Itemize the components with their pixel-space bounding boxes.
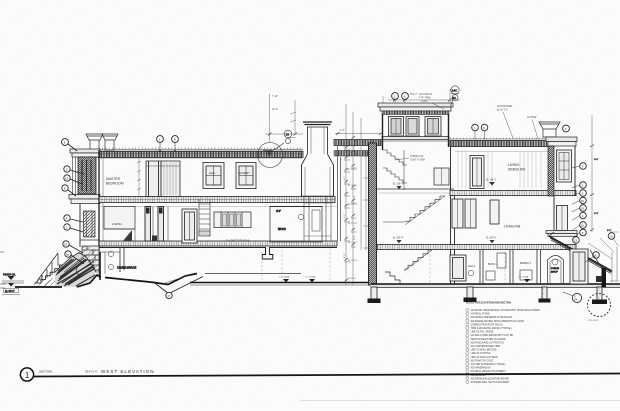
svg-text:14C: 14C [452, 89, 457, 93]
svg-text:15: 15 [64, 242, 68, 246]
svg-text:TRIM & MOULDING DETAIL (TYPICA: TRIM & MOULDING DETAIL (TYPICAL) [471, 327, 512, 330]
svg-text:10: 10 [65, 176, 69, 180]
svg-text:BDRM 1: BDRM 1 [520, 261, 531, 265]
svg-text:EL 98'-6": EL 98'-6" [348, 278, 357, 280]
svg-text:5A: 5A [453, 96, 456, 100]
svg-text:3/16"=1'-0": 3/16"=1'-0" [85, 370, 98, 374]
svg-text:1: 1 [25, 370, 30, 380]
svg-text:SECTION: SECTION [39, 370, 52, 374]
svg-text:LIVING/: LIVING/ [508, 163, 519, 167]
svg-text:8'-2": 8'-2" [607, 230, 612, 232]
svg-text:WD HANDRAILING: WD HANDRAILING [471, 367, 491, 370]
svg-text:WD CORNER BOARD TRIM: WD CORNER BOARD TRIM [471, 345, 501, 348]
svg-text:HEATING REGISTER TO GRADE: HEATING REGISTER TO GRADE [471, 338, 506, 341]
svg-text:GUTTER SLAB EDGE (TYPICAL): GUTTER SLAB EDGE (TYPICAL) [471, 363, 506, 366]
svg-text:EL 100'-4": EL 100'-4" [393, 238, 404, 240]
svg-text:8'-6": 8'-6" [344, 253, 346, 258]
svg-text:LIVING RM: LIVING RM [504, 225, 521, 229]
svg-text:MASTER: MASTER [106, 177, 121, 181]
svg-text:PORCH: PORCH [551, 268, 559, 270]
svg-text:WD TRIM TYP. CONT.: WD TRIM TYP. CONT. [471, 360, 494, 362]
svg-text:WD FRAME DOUBLE HUNG WINDOWS I: WD FRAME DOUBLE HUNG WINDOWS IN A ROW [471, 320, 525, 323]
svg-text:HALL: HALL [209, 171, 216, 175]
svg-text:16: 16 [581, 206, 585, 210]
svg-text:STONE CAP: STONE CAP [410, 155, 424, 158]
svg-text:9'-2": 9'-2" [594, 213, 599, 215]
svg-text:NOTES FOR ELEVATION AND: NOTES FOR ELEVATION AND SECTION [466, 302, 511, 305]
svg-text:HALL: HALL [468, 264, 476, 268]
svg-text:FTG. DET.: FTG. DET. [588, 320, 599, 322]
svg-text:EL 96'-0": EL 96'-0" [5, 290, 15, 293]
svg-text:EL 100'-0": EL 100'-0" [486, 238, 497, 240]
svg-text:LINE OF FIN. GRADE: LINE OF FIN. GRADE [471, 331, 494, 334]
svg-text:8'-1": 8'-1" [344, 175, 346, 180]
svg-text:GUTTER: GUTTER [527, 117, 537, 119]
svg-text:5a: 5a [66, 252, 70, 256]
svg-text:±2'-6": ±2'-6" [272, 108, 278, 111]
svg-text:WD FASCIA AND GUTTER SYS: WD FASCIA AND GUTTER SYS [471, 341, 505, 344]
svg-text:±10'-7": ±10'-7" [410, 93, 418, 96]
svg-text:NATURAL GRADE ATTACHMENT: NATURAL GRADE ATTACHMENT [471, 370, 507, 373]
svg-text:EL 108'-9": EL 108'-9" [393, 184, 404, 186]
svg-text:T.O. SLAB: T.O. SLAB [518, 276, 529, 279]
svg-text:CLOSET ROOM: CLOSET ROOM [226, 239, 249, 243]
svg-text:LINE OF WALLS AT DECK: LINE OF WALLS AT DECK [471, 356, 499, 359]
svg-text:WEST ELEVATION: WEST ELEVATION [101, 369, 155, 374]
svg-text:BEDROOM: BEDROOM [106, 182, 124, 186]
svg-text:2x8 RAFTERS: 2x8 RAFTERS [497, 105, 513, 108]
svg-text:WD DETAILING ELEVATION BOARD: WD DETAILING ELEVATION BOARD [471, 377, 510, 380]
svg-text:10: 10 [581, 199, 585, 203]
svg-text:17: 17 [167, 294, 171, 298]
svg-text:8'-6": 8'-6" [594, 159, 599, 161]
svg-text:7'-10": 7'-10" [272, 95, 278, 98]
svg-text:15: 15 [581, 223, 585, 227]
svg-text:EL 108'-3": EL 108'-3" [486, 180, 497, 182]
svg-text:9'-0": 9'-0" [344, 142, 346, 147]
svg-text:CONT. FLASH: CONT. FLASH [410, 159, 425, 162]
svg-text:14: 14 [286, 133, 290, 137]
svg-text:9'-0": 9'-0" [344, 213, 346, 218]
svg-text:COMPOSITION ROOF SHGLS: COMPOSITION ROOF SHGLS [471, 324, 503, 326]
svg-text:T.O. SLAB: T.O. SLAB [305, 276, 316, 279]
svg-text:2x6 WOOD VERANDA RAIL SYSTEM W: 2x6 WOOD VERANDA RAIL SYSTEM WITH WOOD B… [471, 309, 541, 312]
svg-text:4'-0": 4'-0" [276, 210, 281, 213]
svg-text:2x6 WALL FRMG ABOVE WITH GYP.: 2x6 WALL FRMG ABOVE WITH GYP. BD [471, 334, 514, 337]
svg-text:LIVING: LIVING [112, 222, 123, 226]
svg-text:6'-8": 6'-8" [354, 235, 356, 240]
svg-text:CRAWLSPACE: CRAWLSPACE [117, 266, 136, 270]
svg-text:7'-4": 7'-4" [354, 195, 356, 200]
svg-text:LINE OF FOOTING: LINE OF FOOTING [471, 353, 491, 355]
svg-text:4'-2": 4'-2" [340, 129, 345, 132]
svg-text:LAUNDRY: LAUNDRY [238, 172, 250, 175]
svg-text:@ 16" O.C.: @ 16" O.C. [497, 110, 509, 112]
svg-text:T.O. SLAB: T.O. SLAB [279, 276, 290, 279]
svg-text:CONT.: CONT. [421, 100, 429, 103]
svg-text:100'-0": 100'-0" [551, 271, 558, 273]
svg-text:LINE OF WALL BEYOND: LINE OF WALL BEYOND [471, 349, 497, 352]
svg-text:15: 15 [574, 238, 578, 242]
svg-text:SHOWER WALL TEXTS DOCUMENT: SHOWER WALL TEXTS DOCUMENT [471, 381, 511, 384]
svg-text:7'-10": 7'-10" [354, 144, 356, 150]
svg-text:WOOD: WOOD [278, 228, 286, 231]
svg-text:WD SIDING PRESERVE AS DETAILIN: WD SIDING PRESERVE AS DETAILING [471, 316, 513, 319]
svg-text:DINING RM: DINING RM [508, 168, 525, 172]
svg-text:NATURAL STONE: NATURAL STONE [471, 313, 490, 316]
